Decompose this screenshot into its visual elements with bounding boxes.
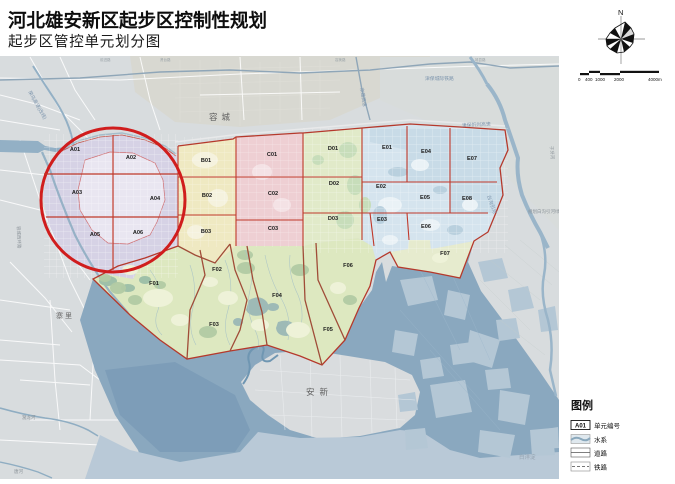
- svg-text:单元编号: 单元编号: [594, 421, 621, 430]
- svg-text:A06: A06: [133, 230, 143, 236]
- svg-text:N: N: [618, 8, 623, 17]
- svg-text:铁路: 铁路: [594, 463, 608, 472]
- svg-text:1000: 1000: [595, 77, 606, 82]
- svg-text:白洋淀: 白洋淀: [519, 453, 536, 461]
- svg-text:容美路: 容美路: [335, 57, 346, 62]
- svg-text:E05: E05: [420, 195, 430, 201]
- svg-text:F04: F04: [272, 293, 283, 299]
- svg-text:E07: E07: [467, 156, 477, 162]
- svg-text:前进路: 前进路: [100, 57, 111, 62]
- svg-text:A02: A02: [126, 155, 136, 161]
- svg-text:F07: F07: [440, 251, 450, 257]
- svg-text:A04: A04: [150, 196, 161, 202]
- svg-text:贤台路: 贤台路: [160, 57, 171, 62]
- svg-text:4000m: 4000m: [648, 77, 662, 82]
- svg-text:津保城际铁路: 津保城际铁路: [425, 75, 454, 82]
- svg-text:E02: E02: [376, 184, 386, 190]
- svg-text:A01: A01: [575, 424, 587, 430]
- svg-text:F02: F02: [212, 267, 222, 273]
- svg-text:E04: E04: [421, 149, 432, 155]
- svg-text:A01: A01: [70, 147, 80, 153]
- svg-text:道路: 道路: [594, 449, 608, 458]
- svg-text:B03: B03: [201, 229, 211, 235]
- svg-text:起步区管控单元划分图: 起步区管控单元划分图: [8, 34, 161, 51]
- svg-text:A05: A05: [90, 232, 100, 238]
- svg-text:2000: 2000: [614, 77, 625, 82]
- svg-text:F03: F03: [209, 322, 219, 328]
- svg-text:C02: C02: [268, 191, 278, 197]
- svg-text:F01: F01: [149, 281, 159, 287]
- svg-text:C01: C01: [267, 152, 277, 158]
- svg-text:F05: F05: [323, 327, 333, 333]
- svg-text:D01: D01: [328, 146, 338, 152]
- svg-text:安新: 安新: [306, 387, 333, 397]
- svg-text:C03: C03: [268, 226, 278, 232]
- svg-text:图例: 图例: [571, 398, 593, 412]
- svg-text:唐河: 唐河: [14, 468, 23, 475]
- svg-text:雄县路: 雄县路: [475, 57, 486, 62]
- svg-text:F06: F06: [343, 263, 353, 269]
- svg-text:寨里: 寨里: [56, 311, 74, 320]
- svg-text:E08: E08: [462, 196, 472, 202]
- svg-text:E06: E06: [421, 224, 431, 230]
- svg-text:E03: E03: [377, 217, 387, 223]
- svg-text:400: 400: [585, 77, 593, 82]
- svg-text:D02: D02: [329, 181, 339, 187]
- svg-text:容城: 容城: [209, 112, 234, 122]
- svg-text:E01: E01: [382, 145, 392, 151]
- svg-text:D03: D03: [328, 216, 338, 222]
- svg-text:B02: B02: [202, 193, 212, 199]
- svg-text:A03: A03: [72, 190, 82, 196]
- svg-text:河北雄安新区起步区控制性规划: 河北雄安新区起步区控制性规划: [8, 10, 267, 31]
- svg-text:水系: 水系: [594, 435, 608, 444]
- svg-text:潴龙河: 潴龙河: [22, 414, 36, 421]
- svg-text:B01: B01: [201, 158, 211, 164]
